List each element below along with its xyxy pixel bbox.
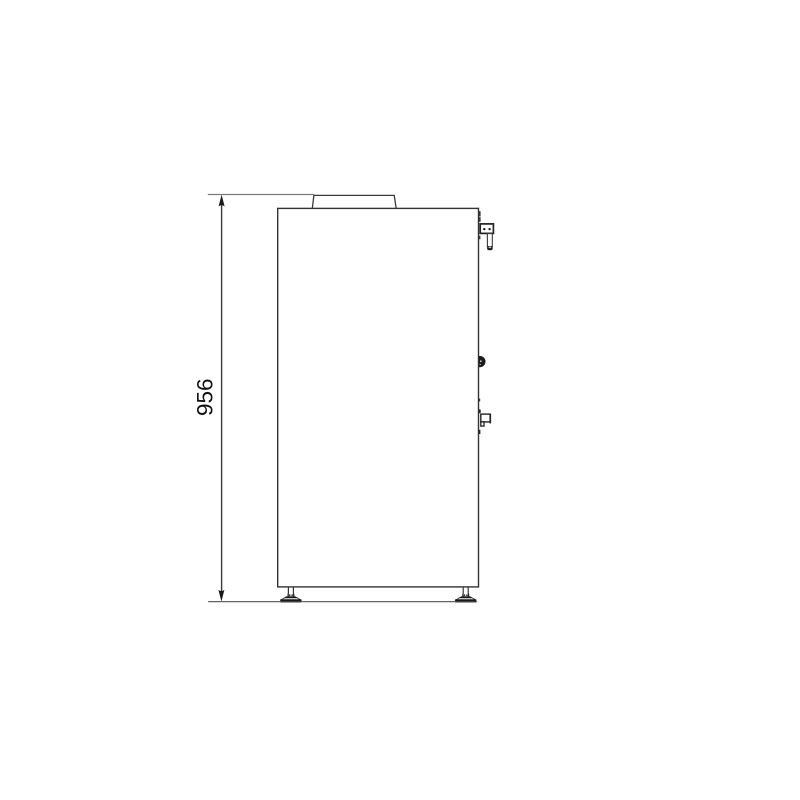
- svg-text:956: 956: [193, 378, 218, 416]
